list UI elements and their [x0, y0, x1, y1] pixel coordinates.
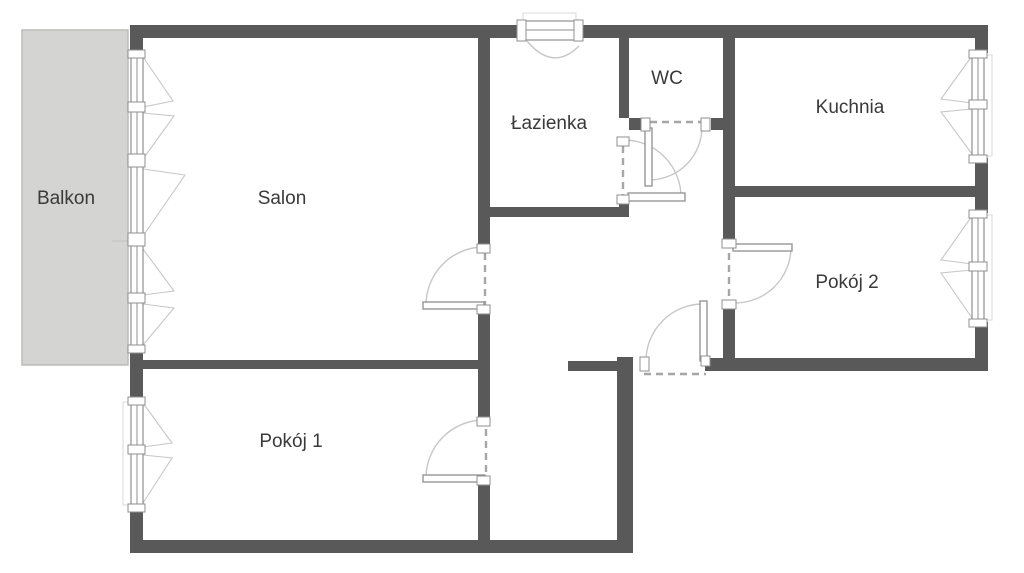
door-leaf-salon — [423, 302, 484, 309]
window-casement-swing — [143, 403, 172, 447]
window-casement-swing — [143, 113, 174, 159]
room-label-pokoj1: Pokój 1 — [259, 431, 322, 452]
wall-wc-bottom-right — [711, 118, 724, 130]
window-mullion-tab — [128, 397, 145, 405]
window-casement-swing — [941, 216, 972, 264]
wall-kitchen-room2-divider — [735, 186, 975, 197]
wall-segment-left-upper — [130, 25, 143, 53]
window-sills — [123, 13, 992, 505]
door-frame-tab — [617, 137, 629, 146]
door-frame-tab — [640, 357, 649, 371]
window-mullion-tab — [969, 155, 987, 163]
windows — [128, 20, 987, 512]
window-casement-swing — [941, 56, 972, 103]
window-casement-swing — [143, 304, 174, 345]
window-mullion-tab — [128, 293, 145, 303]
wall-segment-notch-vertical — [617, 357, 633, 553]
window-mullion-tab — [969, 210, 987, 218]
window-mullion-tab — [128, 50, 145, 58]
wall-hall-left-middle — [478, 313, 490, 418]
wall-segment-right-upper — [975, 25, 988, 53]
floorplan-svg: Balkon Salon Łazienka WC Kuchnia Pokój 1… — [0, 0, 1024, 573]
door-frame-tab — [722, 239, 736, 248]
door-arc-salon — [426, 247, 484, 305]
window-casement-swing — [143, 455, 172, 503]
wall-wc-bottom-left — [629, 118, 641, 130]
window-mullion-tab — [128, 504, 145, 512]
door-leaf-bathroom — [628, 193, 685, 201]
window-mullion-tab — [574, 20, 583, 41]
window-casement-swing — [143, 57, 173, 107]
room-labels: Balkon Salon Łazienka WC Kuchnia Pokój 1… — [37, 68, 885, 452]
wall-segment-right-middle — [975, 158, 988, 213]
wall-segment-bottom — [130, 540, 633, 553]
window-casement-swing — [143, 249, 174, 295]
door-frame-tab — [641, 118, 650, 131]
wall-segment-entry-stub — [568, 361, 617, 371]
door-arc-room1 — [426, 420, 484, 478]
door-leaf-room2 — [733, 244, 792, 251]
floorplan-canvas: Balkon Salon Łazienka WC Kuchnia Pokój 1… — [0, 0, 1024, 573]
wall-segment-entry-bottom — [705, 358, 988, 371]
window-mullion-tab — [969, 100, 987, 109]
door-frame-tab — [477, 417, 490, 426]
window-mullion-tab — [128, 233, 145, 246]
wall-segment-left-middle — [130, 348, 143, 400]
wall-segment-top-right — [580, 25, 988, 38]
door-frame-tab — [477, 244, 490, 253]
window-mullion-tab — [128, 154, 145, 167]
window-sill — [523, 13, 576, 21]
wall-salon-room1-divider — [143, 360, 478, 369]
wall-segment-top-left — [130, 25, 521, 38]
wall-hall-left-lower — [478, 484, 490, 553]
room-label-kuchnia: Kuchnia — [816, 97, 885, 118]
window-mullion-tab — [969, 319, 987, 327]
door-frame-tab — [722, 300, 736, 309]
window-mullion-tab — [128, 445, 145, 454]
room-label-wc: WC — [651, 68, 683, 89]
room-label-salon: Salon — [258, 188, 307, 209]
room-label-lazienka: Łazienka — [511, 113, 587, 134]
door-frame-tab — [477, 476, 490, 485]
window-casement-swing — [941, 109, 972, 154]
window-mullion-tab — [128, 102, 145, 112]
window-mullion-tab — [969, 262, 987, 271]
door-frame-tab — [701, 118, 710, 131]
wall-bathroom-bottom — [478, 207, 627, 217]
room-label-pokoj2: Pokój 2 — [815, 272, 878, 293]
door-arc-room2 — [735, 248, 791, 303]
balcony-door-swing — [143, 169, 185, 236]
door-frame-tab — [701, 356, 710, 366]
window-mullion-tab — [969, 50, 987, 58]
door-arc-entrance — [646, 304, 703, 361]
door-leaf-room1 — [423, 475, 485, 482]
window-casement-swing — [527, 41, 579, 58]
wall-kitchen-left-upper — [723, 38, 735, 240]
wall-bathroom-wc-divider — [619, 38, 629, 118]
door-leaf-wc — [645, 128, 652, 186]
room-label-balkon: Balkon — [37, 188, 95, 209]
door-frame-tab — [617, 195, 629, 204]
window-mullion-tab — [517, 20, 526, 41]
window-mullion-tab — [128, 345, 145, 353]
door-leaf-entrance — [700, 301, 707, 361]
window-casement-swing — [941, 270, 972, 318]
door-frame-tab — [477, 305, 490, 314]
wall-kitchen-left-lower — [723, 309, 735, 371]
